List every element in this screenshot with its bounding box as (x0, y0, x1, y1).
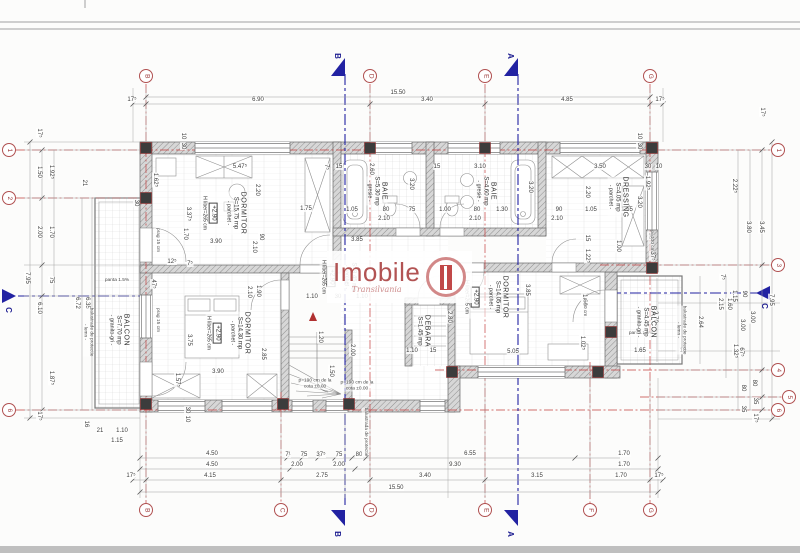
logo-wordmark: Imobile (333, 260, 420, 285)
logo-text: Imobile Transilvania (333, 260, 420, 294)
logo-badge-icon (426, 257, 466, 297)
staircase (289, 332, 345, 398)
stair-direction-arrow (309, 312, 317, 321)
floor-plan-canvas: 15.5017⁵6.903.404.8517⁵4.507¹7537⁵75806.… (0, 0, 800, 553)
company-logo: Imobile Transilvania (327, 251, 472, 303)
